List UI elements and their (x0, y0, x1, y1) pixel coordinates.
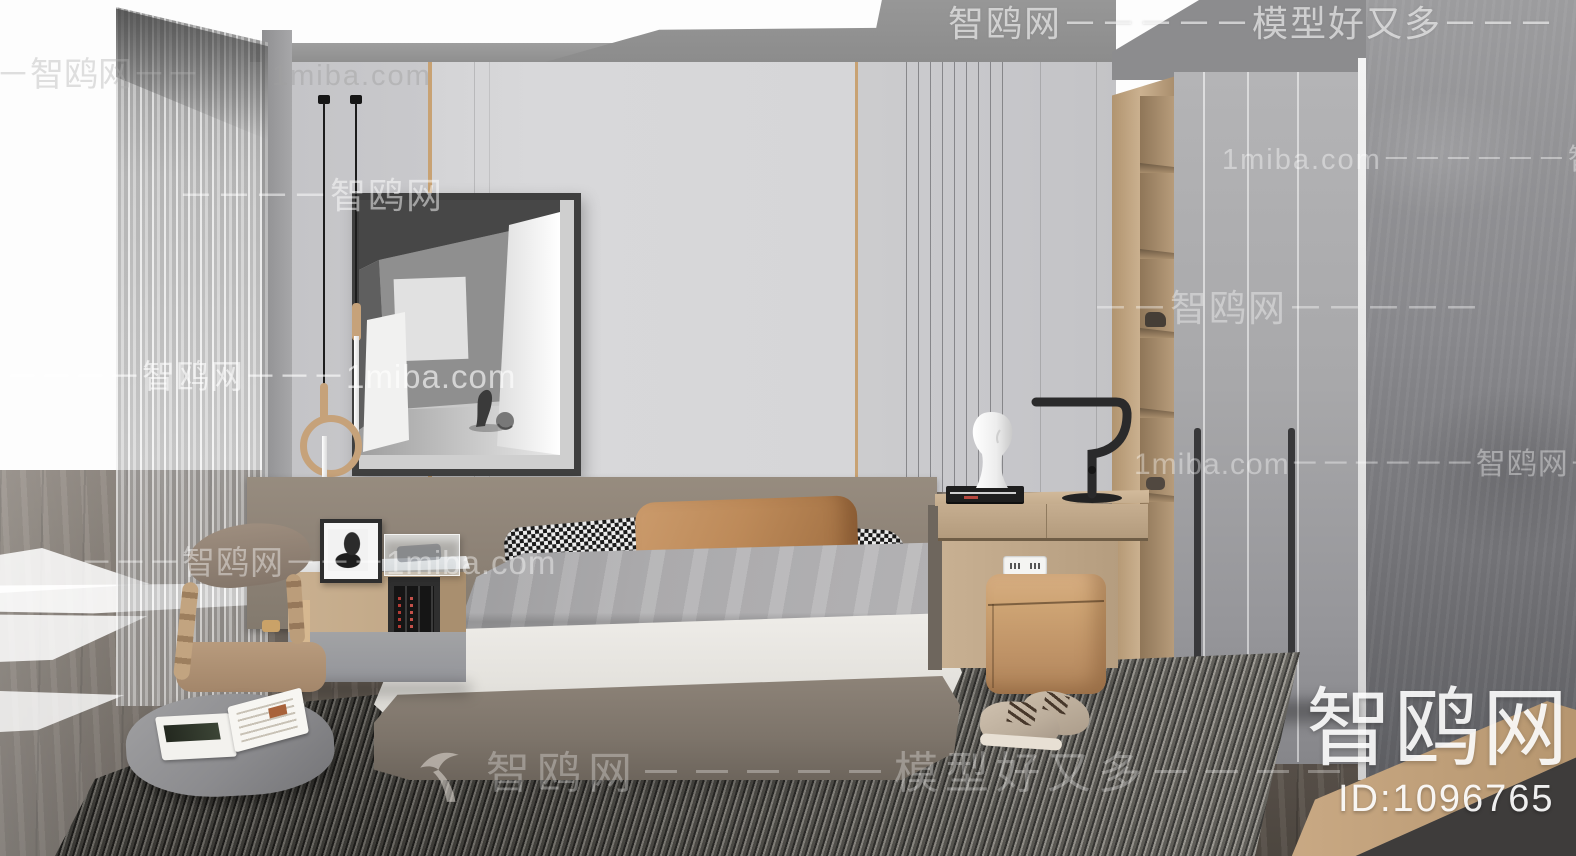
skirting-wedge (1286, 680, 1576, 856)
pendant-cord (323, 103, 325, 387)
upper-right-concrete (1112, 0, 1368, 80)
desk-drawer-seam (1046, 504, 1047, 540)
backpack-tag (262, 620, 280, 632)
book-spine-text (398, 594, 401, 628)
shoe-laces (1006, 700, 1037, 727)
pendant-cord (355, 103, 357, 307)
socket-pins (1010, 563, 1020, 569)
pouf-seam (992, 604, 994, 688)
shelf-object (1145, 312, 1166, 327)
wardrobe-handle (1194, 428, 1201, 664)
desk-drawers (938, 504, 1148, 540)
bedroom-render: 智鸥网－－－－－模型好又多－－－ －－智鸥网－－ 1miba.com －－－－智… (0, 0, 1576, 856)
wardrobe-open-shelves (1140, 96, 1174, 710)
pendant-tube (354, 336, 359, 438)
backpack (170, 524, 335, 704)
backpack-bottom-band (176, 642, 326, 692)
desk-lamp (1028, 390, 1140, 508)
wardrobe-handle (1288, 428, 1295, 664)
box-content (396, 543, 441, 562)
ceiling-concrete (545, 0, 1116, 62)
shoes (978, 692, 1094, 764)
socket-pins (1030, 563, 1040, 569)
book-label (964, 496, 978, 499)
nightstand-wood-side (440, 572, 466, 636)
desk-lamp-shape (1028, 390, 1140, 508)
leather-pouf (986, 574, 1106, 694)
acrylic-box (384, 534, 460, 576)
bust-sculpture (962, 410, 1022, 490)
bust-sculpture-shape (962, 410, 1022, 490)
magazine-text-lines (236, 698, 297, 743)
magazine-page-left (155, 713, 237, 760)
shelf-object (1146, 477, 1165, 490)
pendant-ring (300, 415, 362, 477)
power-socket (1003, 556, 1047, 576)
book-page-edge (950, 492, 1016, 494)
pouf-seam (988, 600, 1104, 606)
book-spine-text (410, 594, 413, 628)
desk-drawer-gap (938, 538, 1148, 541)
bird-logo-icon (414, 740, 482, 804)
wall-art-frame (352, 193, 581, 476)
magazine-photo (163, 723, 220, 743)
wall-gold-trim (855, 60, 858, 492)
wall-art-image (359, 200, 560, 455)
